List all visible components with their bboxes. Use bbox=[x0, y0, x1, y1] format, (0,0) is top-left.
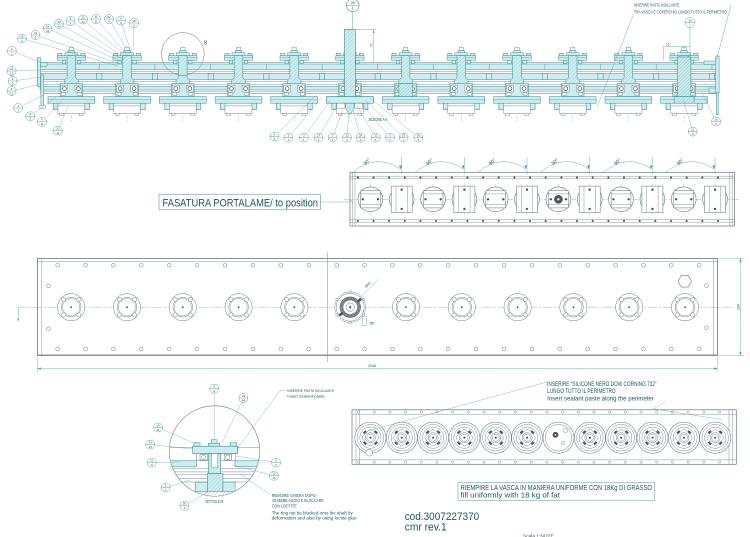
svg-text:23: 23 bbox=[242, 394, 246, 398]
svg-text:11: 11 bbox=[40, 122, 43, 126]
svg-text:92: 92 bbox=[107, 15, 111, 19]
svg-text:INSERIRE “SILICONE NERO DOW CO: INSERIRE “SILICONE NERO DOW CORNING 732” bbox=[547, 382, 657, 388]
svg-text:30: 30 bbox=[688, 18, 692, 22]
svg-text:11: 11 bbox=[272, 476, 275, 480]
svg-text:30: 30 bbox=[417, 134, 421, 138]
svg-text:24: 24 bbox=[149, 441, 153, 445]
svg-text:31: 31 bbox=[374, 134, 378, 138]
svg-text:deformation and also by using: deformation and also by using loctite gl… bbox=[272, 515, 357, 520]
svg-text:32: 32 bbox=[345, 134, 349, 138]
svg-text:RIEMPIRE LA VASCA IN MANIERA U: RIEMPIRE LA VASCA IN MANIERA UNIFORME CO… bbox=[461, 485, 653, 492]
svg-text:21: 21 bbox=[34, 31, 38, 35]
svg-text:25: 25 bbox=[351, 1, 355, 5]
svg-text:24: 24 bbox=[46, 24, 50, 28]
svg-text:Ø5: Ø5 bbox=[370, 322, 375, 326]
svg-text:26: 26 bbox=[20, 34, 24, 38]
svg-text:44: 44 bbox=[57, 24, 61, 28]
svg-text:16: 16 bbox=[714, 117, 718, 121]
svg-text:23: 23 bbox=[10, 67, 14, 71]
svg-text:TRA VASCA E COPERCHIO LUNGO TU: TRA VASCA E COPERCHIO LUNGO TUTTO IL PER… bbox=[634, 10, 727, 15]
svg-text:11: 11 bbox=[56, 131, 59, 135]
svg-text:Insert sealant paste along the: Insert sealant paste along the perimeter bbox=[547, 396, 654, 402]
svg-text:28: 28 bbox=[359, 134, 363, 138]
svg-text:44: 44 bbox=[242, 398, 246, 402]
svg-text:DETTAGLIO B: DETTAGLIO B bbox=[206, 499, 224, 504]
svg-text:44: 44 bbox=[149, 445, 153, 449]
svg-text:44: 44 bbox=[46, 29, 50, 33]
svg-text:44: 44 bbox=[81, 20, 85, 24]
svg-text:10: 10 bbox=[56, 127, 60, 131]
svg-text:CON LOCTITE: CON LOCTITE bbox=[272, 503, 297, 508]
svg-text:11: 11 bbox=[94, 19, 97, 23]
svg-text:164: 164 bbox=[736, 304, 740, 310]
svg-text:INSERIRE PASTA SIGILLANTE: INSERIRE PASTA SIGILLANTE bbox=[287, 388, 334, 393]
svg-text:fill uniformly with 18 kg of f: fill uniformly with 18 kg of fat bbox=[461, 492, 561, 499]
svg-text:1: 1 bbox=[352, 6, 354, 10]
svg-text:12: 12 bbox=[10, 71, 14, 75]
svg-text:FASATURA PORTALAME/ to positio: FASATURA PORTALAME/ to position bbox=[163, 197, 319, 209]
svg-text:LUNGO TUTTO IL PERIMETRO: LUNGO TUTTO IL PERIMETRO bbox=[547, 389, 616, 395]
svg-text:cmr rev.1: cmr rev.1 bbox=[405, 521, 447, 533]
svg-text:20: 20 bbox=[183, 502, 187, 506]
svg-text:12: 12 bbox=[272, 472, 276, 476]
svg-text:21: 21 bbox=[150, 459, 154, 463]
svg-text:23: 23 bbox=[57, 20, 61, 24]
svg-text:70: 70 bbox=[369, 43, 373, 47]
svg-text:29: 29 bbox=[402, 134, 406, 138]
svg-text:25: 25 bbox=[132, 19, 136, 23]
svg-text:22: 22 bbox=[81, 15, 85, 19]
svg-text:10: 10 bbox=[156, 423, 160, 427]
svg-text:11: 11 bbox=[691, 128, 694, 132]
svg-text:ASSEMBLAGGIO E BLOCCARE: ASSEMBLAGGIO E BLOCCARE bbox=[272, 498, 324, 503]
svg-text:27: 27 bbox=[317, 134, 321, 138]
svg-text:RIBADIRE GHIERA DOPO: RIBADIRE GHIERA DOPO bbox=[272, 493, 316, 498]
svg-text:11: 11 bbox=[156, 428, 159, 432]
svg-text:15: 15 bbox=[666, 43, 670, 47]
svg-text:12: 12 bbox=[10, 91, 14, 95]
svg-text:2946: 2946 bbox=[368, 364, 376, 368]
svg-text:Insert sealant paste: Insert sealant paste bbox=[287, 394, 325, 399]
svg-text:INSERIRE PASTA SIGILLANTE: INSERIRE PASTA SIGILLANTE bbox=[634, 3, 679, 8]
svg-text:Scala 1:NOTE: Scala 1:NOTE bbox=[523, 533, 554, 537]
